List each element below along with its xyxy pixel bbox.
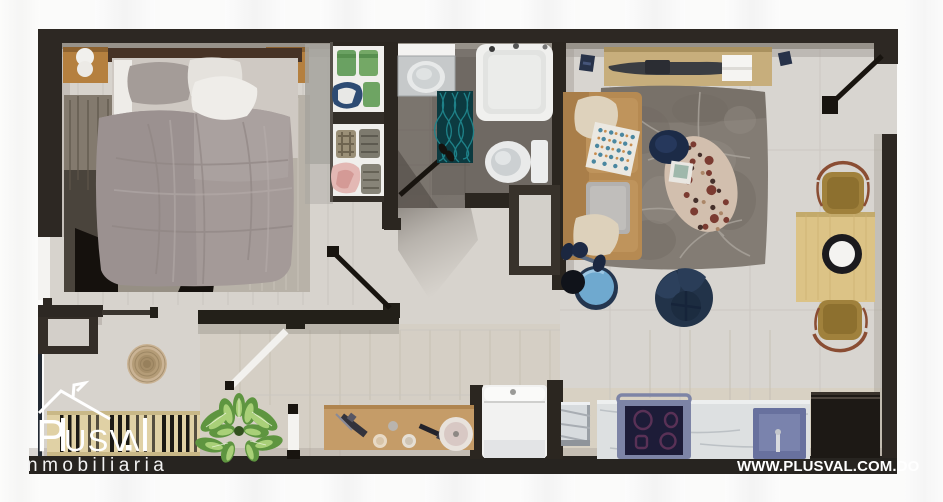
svg-text:Λ: Λ: [119, 423, 140, 458]
svg-text:l: l: [140, 410, 150, 461]
svg-text:WWW.PLUSVAL.COM.DO: WWW.PLUSVAL.COM.DO: [737, 458, 920, 475]
svg-text:nmobiliaria: nmobiliaria: [27, 455, 168, 476]
